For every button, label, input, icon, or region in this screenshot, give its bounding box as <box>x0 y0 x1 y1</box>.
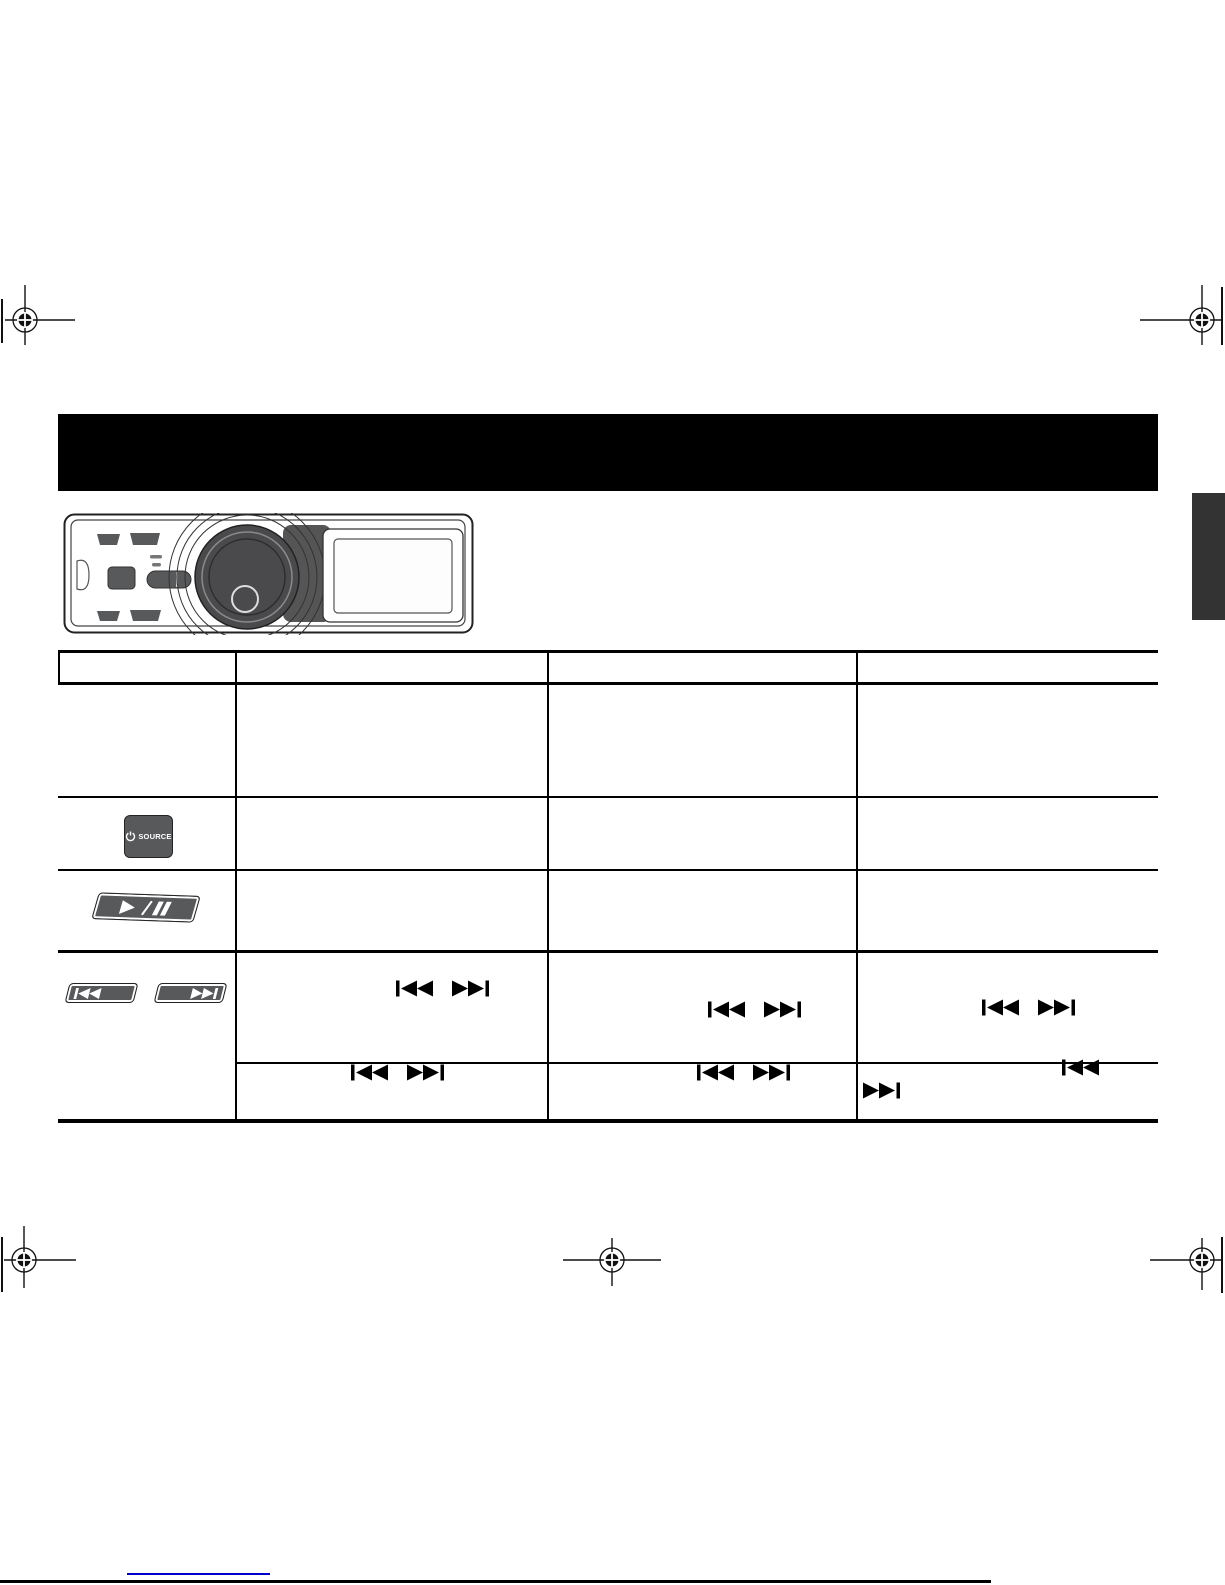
next-track-button <box>154 983 228 1003</box>
previous-track-icon <box>351 1064 389 1081</box>
car-stereo-illustration <box>63 513 475 635</box>
table-row-rule-1 <box>58 796 1158 798</box>
top-left-button-2 <box>130 533 160 545</box>
chapter-side-tab <box>1192 493 1225 620</box>
previous-track-icon <box>396 980 434 997</box>
section-title-banner <box>58 414 1158 491</box>
trim-line-left-bottom <box>1 1237 3 1292</box>
knob-center-button <box>232 586 258 612</box>
registration-mark-top-left <box>5 285 75 347</box>
next-track-icon <box>189 988 220 999</box>
seek-glyphs-col3-main <box>708 1001 801 1018</box>
registration-mark-bottom-left <box>4 1226 76 1288</box>
footer-link-underline <box>127 1573 270 1575</box>
slash-divider <box>142 900 152 914</box>
previous-track-icon <box>697 1064 735 1081</box>
play-icon <box>119 900 137 914</box>
bottom-left-button-2 <box>130 610 161 621</box>
registration-mark-top-right <box>1140 285 1223 347</box>
seek-glyphs-col3-sub <box>697 1064 790 1081</box>
previous-track-icon <box>73 988 104 999</box>
seek-glyph-col4-sub-prev <box>1062 1059 1100 1076</box>
previous-track-icon <box>708 1001 746 1018</box>
trim-line-left-top <box>1 299 3 343</box>
display-window <box>334 539 452 613</box>
registration-mark-bottom-right <box>1150 1238 1224 1292</box>
seek-glyph-col4-sub-next <box>862 1082 900 1099</box>
next-track-icon <box>763 1001 801 1018</box>
panel-source-button <box>108 567 135 589</box>
previous-track-button <box>65 983 139 1003</box>
seek-glyphs-col2-sub <box>351 1064 444 1081</box>
next-track-icon <box>406 1064 444 1081</box>
registration-mark-bottom-center <box>562 1238 662 1288</box>
table-col-rule-1 <box>235 650 237 1123</box>
table-header-rule <box>58 682 1158 685</box>
bottom-left-button <box>97 611 120 621</box>
table-top-rule <box>58 650 1158 653</box>
previous-track-icon <box>1062 1059 1100 1076</box>
led-indicator-2 <box>152 563 161 567</box>
table-col-rule-3 <box>856 650 858 1123</box>
play-pause-icons <box>115 899 178 917</box>
source-button: SOURCE <box>124 815 173 858</box>
source-button-label: SOURCE <box>138 832 171 841</box>
seek-glyphs-col4-main <box>982 999 1075 1016</box>
table-row-rule-3 <box>58 950 1158 953</box>
next-track-icon <box>1037 999 1075 1016</box>
table-col-rule-2 <box>547 650 549 1123</box>
table-row-rule-2 <box>58 869 1158 871</box>
left-notch <box>77 560 89 589</box>
previous-track-icon <box>982 999 1020 1016</box>
led-indicator <box>150 555 162 559</box>
page-bottom-edge <box>0 1580 991 1583</box>
power-icon <box>125 831 136 842</box>
table-bottom-rule <box>58 1119 1158 1123</box>
top-left-button <box>97 534 120 545</box>
volume-knob <box>195 525 299 629</box>
next-track-icon <box>451 980 489 997</box>
table-left-header-rule <box>58 650 60 685</box>
manual-page: SOURCE <box>0 0 1225 1585</box>
seek-glyphs-col2-main <box>396 980 489 997</box>
next-track-icon <box>862 1082 900 1099</box>
next-track-icon <box>752 1064 790 1081</box>
play-pause-button <box>91 892 201 922</box>
